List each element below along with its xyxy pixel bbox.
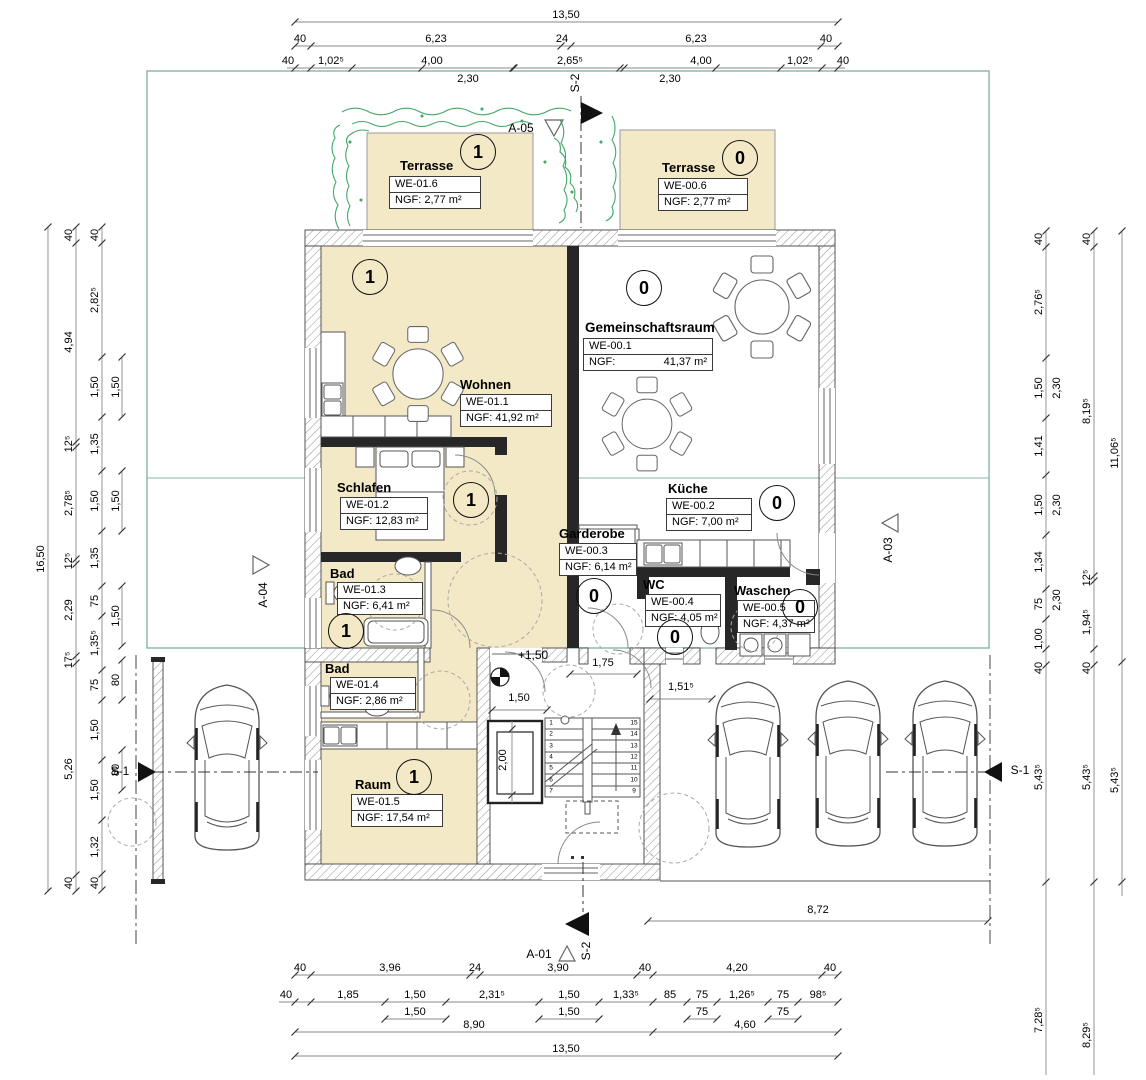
stair-step-number: 1 [549,720,553,727]
room-info-terrasse-0: WE-00.6 NGF: 2,77 m² [658,178,748,211]
dimension-label: 3,90 [547,962,568,974]
stair-step-number: 14 [630,731,637,738]
unit-badge-raum: 1 [396,759,432,795]
room-info-raum: WE-01.5 NGF: 17,54 m² [351,794,443,827]
dimension-label: 2,76⁵ [1033,289,1045,315]
room-name-garderobe: Garderobe [559,526,625,541]
section-marker-s2-top: S-2 [568,74,582,93]
dimension-label: 1,50 [89,376,101,397]
room-area: NGF: 2,86 m² [331,693,415,709]
dimension-label: 2,30 [659,73,680,85]
dimension-label: 80 [110,674,122,686]
dimension-label: 4,60 [734,1019,755,1031]
room-name-terrasse-0: Terrasse [662,160,715,175]
schlafen-door-opening [495,455,507,495]
room-area: NGF: 2,77 m² [659,194,747,210]
dimension-label: 98⁵ [810,989,827,1001]
dimension-label: 2,65⁵ [557,55,583,67]
room-name-gemeinschaftsraum: Gemeinschaftsraum [585,320,715,335]
room-info-kueche: WE-00.2 NGF: 7,00 m² [666,498,752,531]
room-area: NGF: 17,54 m² [352,810,442,826]
unit-number: 0 [670,627,680,648]
dimension-label: 40 [294,33,306,45]
dimension-label: 1,50 [89,490,101,511]
dimension-label: 75 [1033,598,1045,610]
dimension-label: 1,50 [558,1006,579,1018]
dimension-label: 1,50 [89,719,101,740]
dimension-label: 1,02⁵ [787,55,813,67]
dimension-label: 40 [280,989,292,1001]
room-area: NGF: 6,14 m² [560,559,636,575]
dimension-label: 8,19⁵ [1081,398,1093,424]
unit-number: 0 [795,597,805,618]
floor-plan-canvas: 13,50 40 6,23 24 6,23 40 40 1,02⁵ 4,00 2… [0,0,1146,1080]
dimension-label: 11,06⁵ [1109,437,1121,468]
dimension-label: 1,85 [337,989,358,1001]
dimension-label: 75 [89,595,101,607]
section-marker-s1-right: S-1 [1011,763,1030,777]
dimension-label: 5,43⁵ [1081,764,1093,790]
dimension-label: 75 [777,989,789,1001]
dimension-label: 40 [639,962,651,974]
room-info-gemeinschaftsraum: WE-00.1 NGF: 41,37 m² [583,338,713,371]
room-id: WE-00.1 [584,339,712,354]
dimension-label: 16,50 [35,545,47,573]
dimension-label: 2,30 [1051,589,1063,610]
dimension-label: 40 [89,229,101,241]
dimension-label: 2,30 [457,73,478,85]
room-id: WE-01.4 [331,678,415,693]
room-name-wohnen: Wohnen [460,377,511,392]
dimension-label: 1,51⁵ [668,681,694,693]
dimension-label: 75 [777,1006,789,1018]
stair-step-number: 10 [630,777,637,784]
dimension-label: 7,28⁵ [1033,1007,1045,1033]
dimension-label: 4,94 [63,331,75,352]
stair-step-number: 15 [630,720,637,727]
dimension-label: 24 [469,962,481,974]
room-info-bad-2: WE-01.4 NGF: 2,86 m² [330,677,416,710]
dimension-label: 2,78⁵ [63,490,75,516]
unit-badge-kueche: 0 [759,485,795,521]
unit-number: 0 [639,278,649,299]
area-label: NGF: [589,355,615,370]
dimension-label: 1,50 [404,1006,425,1018]
room-name-bad-2: Bad [325,661,350,676]
section-marker-s2-bottom: S-2 [579,942,593,961]
dimension-label: 2,00 [497,749,509,770]
room-info-garderobe: WE-00.3 NGF: 6,14 m² [559,543,637,576]
dimension-label: 1,02⁵ [318,55,344,67]
dimension-label: 1,35⁵ [89,630,101,656]
dimension-label: 40 [282,55,294,67]
car-right-3 [905,681,985,846]
dimension-label: 1,50 [110,490,122,511]
dimension-label: 5,43⁵ [1109,767,1121,793]
dimension-label: 40 [1033,662,1045,674]
room-area: NGF: 2,77 m² [390,192,480,208]
dimension-label: 12⁵ [1081,570,1093,587]
stair-step-number: 12 [630,754,637,761]
dimension-label: 13,50 [552,9,580,21]
room-id: WE-00.2 [667,499,751,514]
room-id: WE-01.6 [390,177,480,192]
dimension-label: 2,30 [1051,494,1063,515]
dimension-label: 2,29 [63,599,75,620]
unit-badge-waschen: 0 [782,589,818,625]
room-area: NGF: 41,92 m² [461,410,551,426]
dimension-label: 75 [696,989,708,1001]
unit-badge-terrasse-0: 0 [722,140,758,176]
unit-badge-wc: 0 [657,619,693,655]
dimension-label: 1,50 [508,692,529,704]
dimension-label: 40 [1081,233,1093,245]
unit-number: 1 [409,767,419,788]
dimension-label: 75 [696,1006,708,1018]
unit-badge-garderobe: 0 [576,578,612,614]
elevation-marker-a01: A-01 [526,947,551,961]
dimension-label: 1,26⁵ [729,989,755,1001]
stair-step-number: 7 [549,788,553,795]
stair-step-number: 2 [549,731,553,738]
dimension-label: 12⁵ [63,436,75,453]
dimension-label: 1,50 [1033,494,1045,515]
unit-number: 1 [341,621,351,642]
dimension-label: 1,50 [404,989,425,1001]
stair-step-number: 9 [632,788,636,795]
unit-badge-gemeinschaftsraum: 0 [626,270,662,306]
dining-table-common-1 [712,256,811,358]
unit-number: 1 [473,142,483,163]
stair-step-number: 4 [549,754,553,761]
dimension-label: 3,96 [379,962,400,974]
dimension-label: 8,29⁵ [1081,1022,1093,1048]
stair-step-number: 6 [549,777,553,784]
dining-table-common-2 [601,377,692,471]
dimension-label: 40 [63,229,75,241]
room-info-schlafen: WE-01.2 NGF: 12,83 m² [340,497,428,530]
unit-badge-wohnen: 1 [352,259,388,295]
car-right-2 [808,681,888,846]
dimension-label: 6,23 [425,33,446,45]
stair-step-number: 5 [549,765,553,772]
dimension-label: 1,35 [89,547,101,568]
dimension-label: 1,50 [558,989,579,1001]
unit-number: 0 [735,148,745,169]
dimension-label: 85 [664,989,676,1001]
level-marker: +1,50 [518,648,548,662]
room-area: NGF: 6,41 m² [338,598,422,614]
dimension-label: 2,82⁵ [89,287,101,313]
room-name-kueche: Küche [668,481,708,496]
dimension-label: 5,43⁵ [1033,764,1045,790]
room-id: WE-00.4 [646,595,720,610]
car-left [187,685,267,850]
dimension-label: 12⁵ [63,553,75,570]
room-id: WE-01.2 [341,498,427,513]
unit-number: 0 [589,586,599,607]
elevation-marker-a04: A-04 [256,582,270,607]
dimension-label: 24 [556,33,568,45]
room-info-wohnen: WE-01.1 NGF: 41,92 m² [460,394,552,427]
dimension-label: 1,33⁵ [613,989,639,1001]
room-id: WE-01.1 [461,395,551,410]
dimension-label: 1,50 [110,605,122,626]
dimension-label: 1,00 [1033,628,1045,649]
dimension-label: 8,90 [463,1019,484,1031]
room-id: WE-00.3 [560,544,636,559]
dimension-label: 1,32 [89,836,101,857]
dimension-label: 40 [1081,662,1093,674]
room-id: WE-00.6 [659,179,747,194]
room-info-terrasse-1: WE-01.6 NGF: 2,77 m² [389,176,481,209]
room-name-bad-1: Bad [330,566,355,581]
room-area: NGF: 12,83 m² [341,513,427,529]
room-area: NGF: 7,00 m² [667,514,751,530]
dimension-label: 1,50 [1033,377,1045,398]
room-info-bad-1: WE-01.3 NGF: 6,41 m² [337,582,423,615]
dimension-label: 40 [1033,233,1045,245]
dimension-label: 4,00 [690,55,711,67]
room-id: WE-01.3 [338,583,422,598]
dimension-label: 1,34 [1033,551,1045,572]
room-name-waschen: Waschen [734,583,791,598]
dimension-label: 40 [837,55,849,67]
dimension-label: 1,41 [1033,435,1045,456]
dimension-label: 75 [89,679,101,691]
elevation-marker-a03: A-03 [881,537,895,562]
stairwell [488,716,640,833]
elevation-marker-a05: A-05 [508,121,533,135]
dimension-label: 40 [63,877,75,889]
dimension-label: 5,26 [63,758,75,779]
room-name-raum: Raum [355,777,391,792]
room-area: NGF: 41,37 m² [584,354,712,370]
car-right-1 [708,682,788,847]
room-name-terrasse-1: Terrasse [400,158,453,173]
dimension-label: 40 [824,962,836,974]
unit-badge-bad-1: 1 [328,613,364,649]
dimension-label: 2,30 [1051,377,1063,398]
dimension-label: 1,50 [110,376,122,397]
dimension-label: 13,50 [552,1043,580,1055]
stair-step-number: 13 [630,743,637,750]
dimension-label: 1,50 [89,779,101,800]
dimension-label: 40 [820,33,832,45]
room-name-schlafen: Schlafen [337,480,391,495]
dimension-label: 4,00 [421,55,442,67]
dimension-label: 17⁵ [63,652,75,669]
dimension-label: 1,94⁵ [1081,609,1093,635]
dimension-label: 40 [89,877,101,889]
section-marker-s1-left: S-1 [111,764,130,778]
dimension-label: 6,23 [685,33,706,45]
room-id: WE-01.5 [352,795,442,810]
unit-number: 1 [466,490,476,511]
stair-step-number: 3 [549,743,553,750]
stair-step-number: 11 [631,765,638,772]
unit-number: 0 [772,493,782,514]
unit-badge-terrasse-1: 1 [460,134,496,170]
dimension-label: 8,72 [807,904,828,916]
area-value: 41,37 m² [664,355,707,370]
dimension-label: 1,35 [89,433,101,454]
dimension-label: 4,20 [726,962,747,974]
unit-badge-schlafen: 1 [453,482,489,518]
dimension-label: 1,75 [592,657,613,669]
dimension-label: 2,31⁵ [479,989,505,1001]
unit-number: 1 [365,267,375,288]
dimension-label: 40 [294,962,306,974]
room-name-wc: WC [643,577,665,592]
